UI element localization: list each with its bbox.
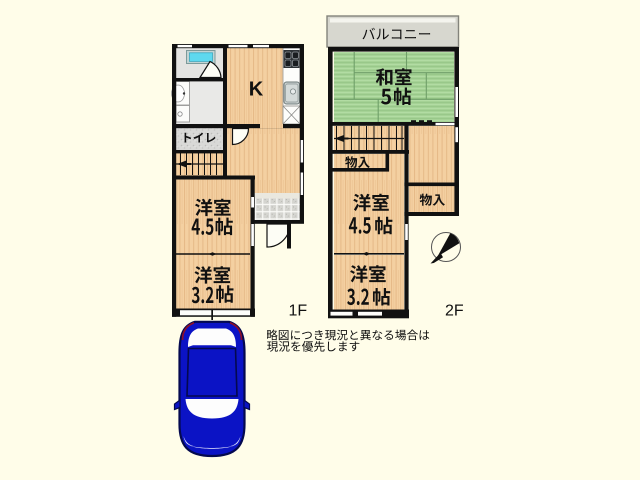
svg-text:1F: 1F — [289, 302, 308, 319]
svg-text:2F: 2F — [445, 302, 464, 319]
svg-text:K: K — [249, 78, 264, 100]
